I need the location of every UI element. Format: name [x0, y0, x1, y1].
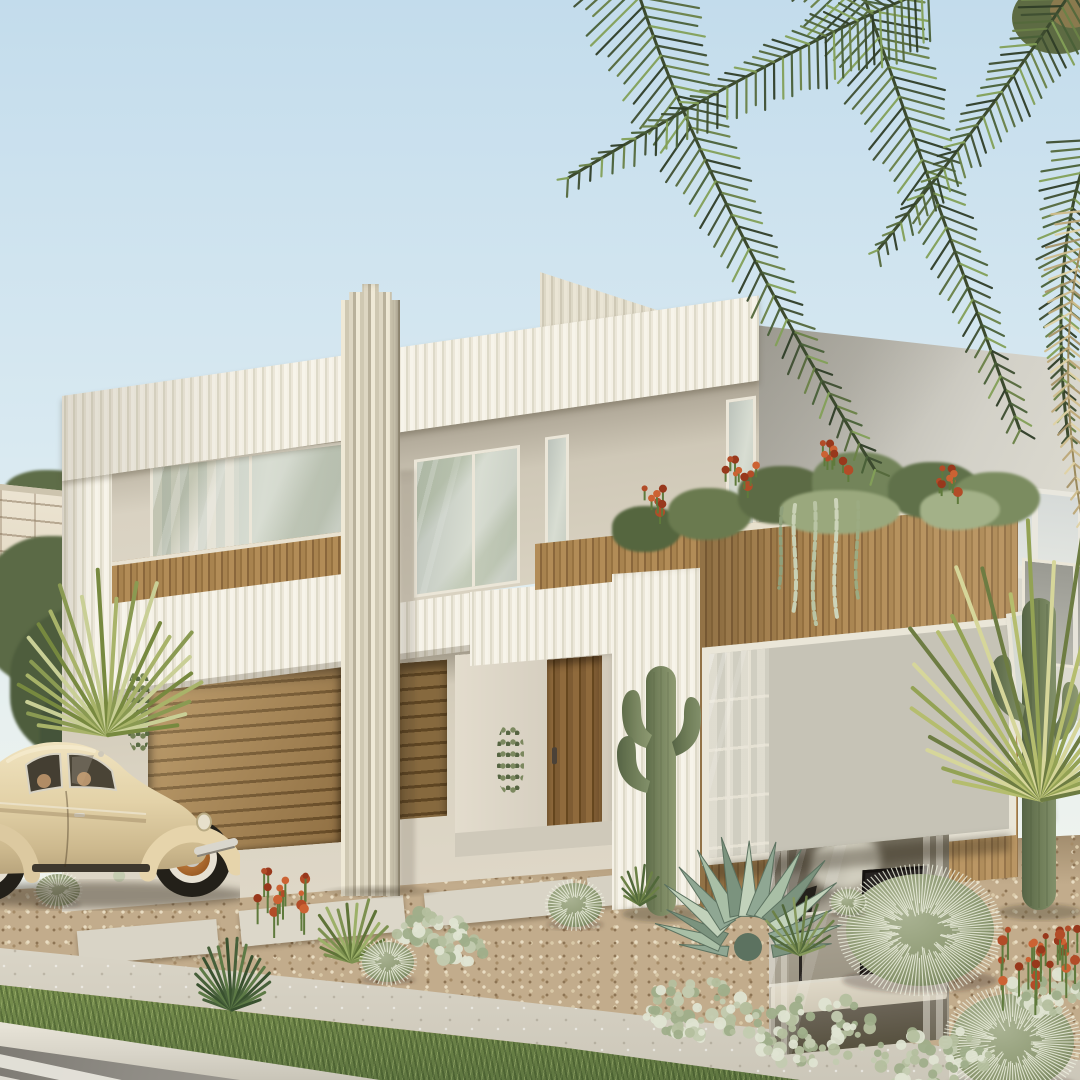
- car-seat-hint: [37, 774, 51, 788]
- sheer-curtain: [949, 1033, 1009, 1080]
- framed-artwork: [860, 865, 929, 982]
- palm-reflection: [417, 448, 517, 594]
- rooftop-planter: [600, 430, 1040, 560]
- sheer-curtain: [709, 648, 769, 858]
- right-entry-pier: [612, 567, 710, 910]
- wall-vine: [497, 724, 524, 794]
- car-headlight: [197, 814, 211, 831]
- background-lower-window-mullion: [1073, 566, 1078, 666]
- vintage-beetle-car: [0, 727, 240, 919]
- car-seat-hint: [77, 772, 91, 786]
- sheer-curtain-edge: [769, 850, 789, 1056]
- left-pier-shade: [62, 464, 112, 710]
- left-pier: [62, 464, 112, 710]
- front-door: [547, 656, 602, 834]
- blade-fin: [341, 284, 400, 896]
- bay-right-casement: [949, 1033, 1009, 1080]
- door-handle: [552, 747, 557, 764]
- planter-shrub-light: [780, 490, 900, 534]
- artwork-figure: [875, 884, 907, 956]
- entry-porch: [455, 642, 617, 857]
- car-running-board: [32, 864, 150, 872]
- bay-window: [702, 617, 1016, 866]
- upper-window-mullion: [472, 454, 475, 586]
- fin-shadow: [399, 470, 415, 891]
- bay-left-casement: [709, 648, 769, 858]
- entry-lintel: [470, 579, 620, 666]
- rendered-scene: [0, 0, 1080, 1080]
- sheer-curtain-edge: [923, 835, 949, 1042]
- upper-window-1: [414, 445, 520, 598]
- fin-ground-shadow: [318, 884, 443, 899]
- car-mirror: [98, 751, 104, 757]
